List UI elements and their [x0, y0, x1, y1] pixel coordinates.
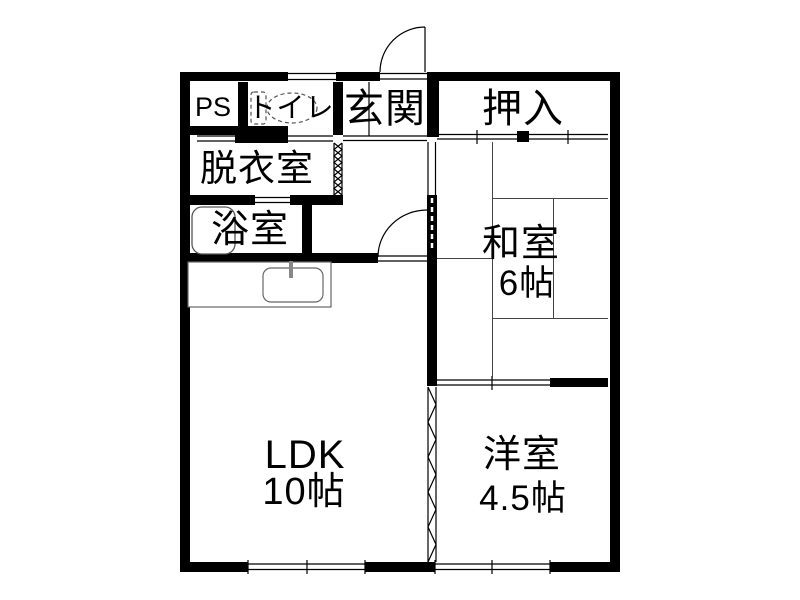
- room-label-dressing-room: 脱衣室: [200, 148, 314, 189]
- western-room-window-icon: [435, 560, 550, 574]
- hall-door-icon: [378, 210, 427, 257]
- ldk-window-icon: [248, 560, 365, 574]
- closet-fusuma-icon: [437, 130, 608, 144]
- room-size-western-room: 4.5帖: [479, 479, 567, 518]
- floor-plan: PS トイレ 玄関 押入 脱衣室 浴室 和室 6帖 LDK 10帖 洋室 4.5…: [0, 0, 800, 600]
- room-label-entrance: 玄関: [344, 87, 426, 131]
- japanese-western-sliding-door-icon: [437, 376, 550, 390]
- room-label-bathroom: 浴室: [211, 209, 289, 251]
- toilet-window-icon: [288, 72, 336, 81]
- room-label-western-room: 洋室: [483, 434, 561, 476]
- kitchen-counter: [188, 261, 331, 307]
- toilet-door-icon: [288, 136, 333, 141]
- floor-plan-drawing: PS トイレ 玄関 押入 脱衣室 浴室 和室 6帖 LDK 10帖 洋室 4.5…: [0, 0, 800, 600]
- room-label-japanese-room: 和室: [482, 223, 560, 265]
- dressing-accordion-door-icon: [334, 143, 342, 195]
- dressing-room-door-icon: [197, 136, 235, 141]
- room-label-closet: 押入: [482, 87, 564, 131]
- ldk-western-accordion-door-icon: [428, 387, 436, 562]
- room-size-ldk: 10帖: [262, 471, 345, 513]
- room-label-ps: PS: [195, 92, 231, 122]
- room-label-toilet: トイレ: [247, 92, 334, 123]
- room-size-japanese-room: 6帖: [499, 264, 555, 303]
- entrance-door-icon: [380, 27, 427, 81]
- japanese-room-entry-opening: [428, 142, 436, 195]
- bathroom-door-icon: [255, 198, 290, 203]
- ldk-door-threshold: [378, 256, 427, 261]
